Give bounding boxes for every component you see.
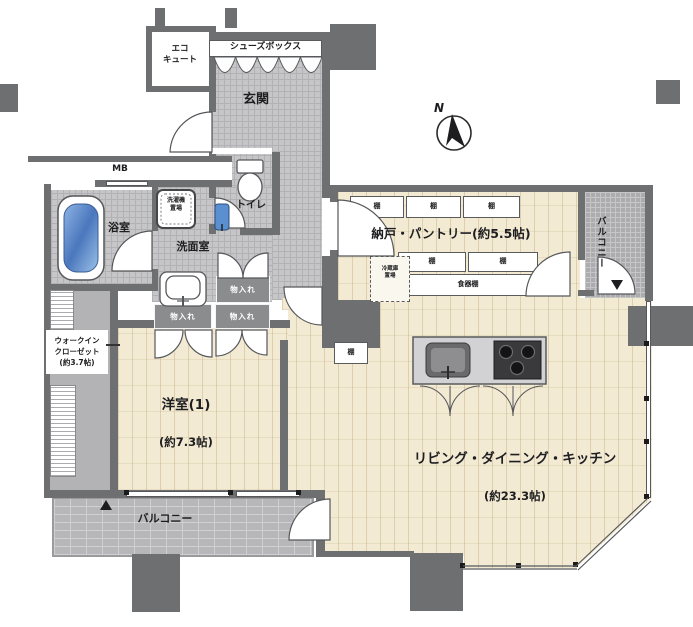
western-room-name: 洋室(1) [128,397,244,415]
label-entrance: 玄関 [224,92,288,109]
label-pantry: 納戸・パントリー(約5.5帖) [346,226,556,242]
ldk-size: (約23.3帖) [395,489,635,504]
balcony-south-door-arc [289,499,330,540]
toilet-icon [237,160,263,201]
kitchen-cabinet-arcs [420,386,543,416]
label-washroom: 洗面室 [164,240,222,254]
bathroom-door-arc [112,231,152,271]
bathtub-icon [58,196,104,280]
label-cupboard: 食器棚 [398,280,538,289]
western-closet-door-1a [155,330,183,358]
label-balcony-south: バルコニー [115,512,215,526]
western-room-size: (約7.3帖) [128,435,244,450]
western-closet-door-2b [242,330,267,355]
hall-ldk-door-arc [284,287,322,325]
kitchen-sink-icon [426,343,470,379]
compass-north-label: N [434,101,444,115]
floor-plan: 物入れ 物入れ 物入れ [0,0,693,627]
entrance-door-arc [170,112,212,152]
label-walk-in-closet: ウォークイン クローゼット (約3.7帖) [48,336,106,369]
fixtures-overlay: N [0,0,693,627]
western-closet-door-1b [185,330,212,357]
hall-closet-door-left [218,253,243,278]
label-shelf-kitchen: 棚 [334,348,368,357]
label-shoes-box: シューズボックス [209,42,322,54]
label-meter-box: MB [95,164,145,176]
label-shelf-2: 棚 [406,202,461,211]
label-shelf-5: 棚 [468,257,538,266]
kitchen-island [413,337,546,416]
label-western-room: 洋室(1) (約7.3帖) [128,376,244,471]
western-closet-door-2a [216,330,242,356]
label-shelf-3: 棚 [463,202,520,211]
hall-closet-door-right [243,253,268,278]
label-shelf-1: 棚 [350,202,404,211]
ldk-name: リビング・ダイニング・キッチン [395,451,635,469]
label-refrigerator: 冷蔵庫 置場 [370,266,410,280]
label-eco-cute: エコ キュート [150,44,210,66]
label-ldk: リビング・ダイニング・キッチン (約23.3帖) [395,430,635,525]
compass-icon: N [434,101,471,150]
washbasin-icon [160,272,206,306]
label-washing-machine: 洗濯機 置場 [158,197,194,213]
label-toilet: トイレ [226,199,276,212]
label-shelf-4: 棚 [398,257,466,266]
label-balcony-east: バルコニー [590,200,606,284]
shoes-box-scallops [214,57,322,73]
label-bathroom: 浴室 [94,221,144,235]
hatch-marker-up [100,500,112,510]
stove-icon [494,341,541,379]
